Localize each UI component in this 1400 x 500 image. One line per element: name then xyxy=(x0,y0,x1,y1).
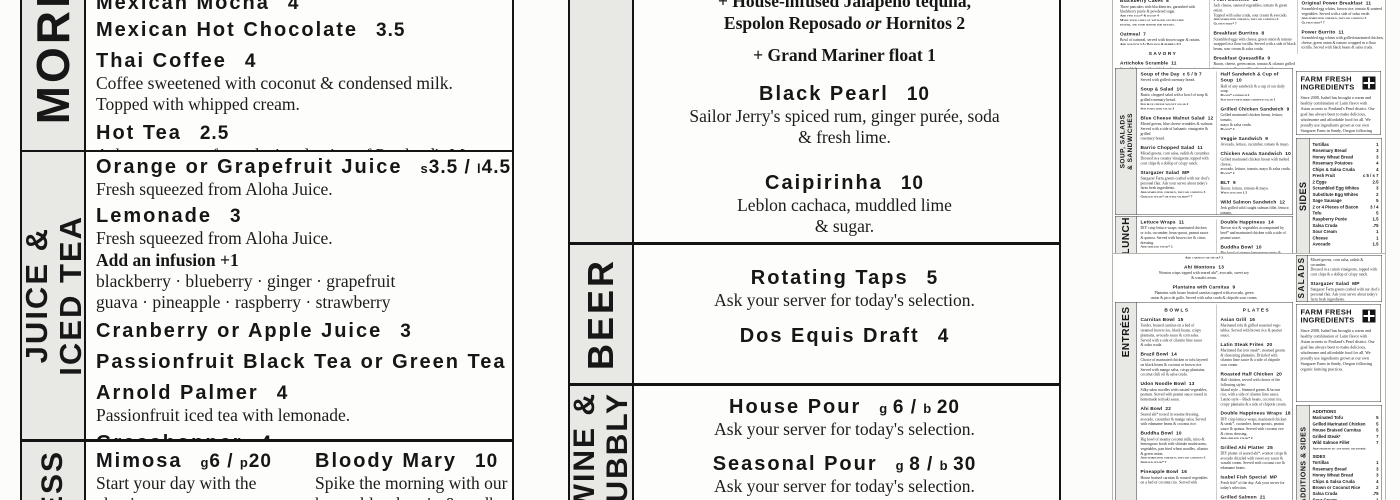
item-price: 10 xyxy=(907,84,930,105)
price-row: Wild Salmon Fillet7 xyxy=(1313,440,1379,446)
farm-fresh-paragraph: Since 2008, Isabel has brought a warm an… xyxy=(1301,328,1377,372)
item-name: Thai Coffee xyxy=(96,50,227,72)
panel-morning-drinks: MORNING Mexican Mocha4 Mexican Hot Choco… xyxy=(20,0,514,152)
menu-item: Bloody Mary10 xyxy=(315,450,510,473)
item-price: 10 xyxy=(475,451,498,472)
thumb-menu-item: Wild Salmon Sandwich12Jerk grilled wild … xyxy=(1221,200,1293,215)
menu-item: Orange or Grapefruit Juices3.5 / l4.5 xyxy=(96,156,506,179)
menu-scan: MORNING Mexican Mocha4 Mexican Hot Choco… xyxy=(0,0,1400,500)
sides-tab: SIDES xyxy=(1297,139,1311,255)
item-price: 4 xyxy=(277,383,289,404)
item-desc: Passionfruit iced tea with lemonade. xyxy=(96,405,506,426)
boozy-tab: BOTTOMLESS xyxy=(22,442,86,500)
item-price: 3.5 xyxy=(376,20,405,41)
thumb-menu-item: Oatmeal7Bowl of oatmeal, served with bro… xyxy=(1120,32,1206,48)
item-name: Arnold Palmer xyxy=(96,382,259,404)
item-name: House Pour xyxy=(729,396,861,418)
thumb-menu-item: Power Burrito11Scrambled egg whites with… xyxy=(1302,29,1386,50)
wine-tab: WINE & BUBBLY xyxy=(570,386,634,500)
thumb-menu-item: Chicken Asada Sandwich10Grilled marinate… xyxy=(1221,151,1293,176)
thumb-menu-item: Grilled Salmon21Grilled wild salmon*, ma… xyxy=(1221,494,1293,500)
thumb-lunch-box: LUNCH Lettuce Wraps11DIY crisp lettuce w… xyxy=(1115,216,1293,255)
farm-fresh-paragraph: Since 2008, Isabel has brought a warm an… xyxy=(1301,95,1377,135)
additions-note: Add protein to any bowl or entrée xyxy=(1313,447,1379,451)
menu-item: House Pourg 6 / b 20 xyxy=(632,396,1057,419)
thumb-menu-item: Carnitas Bowl15Tender, braised carnitas … xyxy=(1141,317,1214,347)
thumb-entrees-box: ENTRÉES BOWLSCarnitas Bowl15Tender, brai… xyxy=(1115,302,1293,500)
infusion-flavors: guava · pineapple · raspberry · strawber… xyxy=(96,292,506,313)
thumb-menu-item: Veggie Sandwich9Avocado, lettuce, cucumb… xyxy=(1221,136,1293,147)
menu-item: Black Pearl10 xyxy=(632,83,1057,106)
item-price: g 6 / b 20 xyxy=(879,397,960,418)
item-price: 10 xyxy=(901,173,924,194)
wine-tab-label-line1: WINE & xyxy=(570,392,600,500)
farm-fresh-box: FARM FRESH INGREDIENTS Since 2008, Isabe… xyxy=(1296,71,1381,135)
thumb-menu-item: Lettuce Wraps11DIY crisp lettuce wraps: … xyxy=(1141,220,1214,250)
thumb-breakfast-col3: tomato. Served with grilled marinated ch… xyxy=(1297,0,1386,54)
beer-tab: BEER xyxy=(570,245,634,383)
item-desc: Spike the morning with our xyxy=(315,473,510,494)
thumb-menu-item: Ahi Bowl22Seared ahi* tossed in sesame d… xyxy=(1141,406,1214,427)
soup-salads-colB: Half Sandwich & Cup of Soup10Half of any… xyxy=(1217,72,1293,216)
item-name: Seasonal Pour xyxy=(713,453,878,475)
item-name: Black Pearl xyxy=(759,83,889,105)
item-name: Bloody Mary xyxy=(315,450,457,472)
thumbnail-dinner-menu: Add carnitas or steak* 2Ahi Wontons13Won… xyxy=(1112,253,1386,500)
salads-items: Mixed greens, corn salsa, radish & cucum… xyxy=(1311,258,1380,303)
thumb-starters: Add carnitas or steak* 2Ahi Wontons13Won… xyxy=(1120,256,1288,304)
thumb-menu-item: Double Happiness14Brown rice & vegetable… xyxy=(1221,220,1293,241)
salads-tab: SALADS xyxy=(1297,256,1309,302)
wine-tab-label-line2: BUBBLY xyxy=(603,392,633,500)
thumb-menu-item: Brazil Bowl14Choice of marinated chicken… xyxy=(1141,351,1214,377)
item-name: Caipirinha xyxy=(765,172,883,194)
sides-price-list: Tortillas1Rosemary Bread3Honey Wheat Bre… xyxy=(1313,142,1379,248)
thumb-menu-item: Buddha Bowl10Big bowl of steamy coconut … xyxy=(1141,431,1214,466)
thumb-menu-item: Grilled Ahi Platter25DIY platter of sear… xyxy=(1221,445,1293,471)
entrees-plates-col: PLATESAsian Grill16Marinated tofu & gril… xyxy=(1217,305,1293,500)
farm-logo-icon xyxy=(1362,76,1377,91)
menu-item: Dos Equis Draft4 xyxy=(632,325,1057,348)
thumb-menu-item: Stargazer SaladMPStargazer Farm greens c… xyxy=(1141,170,1214,200)
menu-item: Rotating Taps5 xyxy=(632,267,1057,290)
item-desc: Coffee sweetened with coconut & condense… xyxy=(96,73,504,94)
soup-salads-tab-line1: SOUP, SALADS xyxy=(1119,115,1126,169)
item-price: 4 xyxy=(245,51,257,72)
lunch-tab-label: LUNCH xyxy=(1121,217,1131,255)
item-desc: Topped with whipped cream. xyxy=(96,94,504,115)
thumb-menu-item: Barrio Chopped Salad11Mixed greens, corn… xyxy=(1141,145,1214,166)
thumb-menu-item: Pineapple Bowl16House braised carnitas &… xyxy=(1141,469,1214,485)
menu-item: Thai Coffee4 xyxy=(96,50,504,73)
infusion-note: Add an infusion +1 xyxy=(96,249,506,271)
thumb-menu-item: BLT9Bacon, lettuce, tomato & mayo.With a… xyxy=(1221,180,1293,196)
thumb-menu-item: Add carnitas or steak* 2 xyxy=(1120,256,1288,260)
soup-salads-tab-line2: & SANDWICHES xyxy=(1127,113,1134,170)
lunch-colB: Double Happiness14Brown rice & vegetable… xyxy=(1217,220,1293,256)
item-price: 4 xyxy=(938,326,950,347)
entrees-tab-label: ENTRÉES xyxy=(1121,307,1131,358)
morning-tab: MORNING xyxy=(22,0,86,150)
thumb-menu-item: Isabel Fish SpecialMPFresh fish* of the … xyxy=(1221,474,1293,490)
thumb-menu-item: PLATES xyxy=(1221,308,1293,314)
thumb-menu-item: Plantains with Carnitas9Plantains with h… xyxy=(1120,284,1288,300)
infusion-flavors: blackberry · blueberry · ginger · grapef… xyxy=(96,271,506,292)
juice-tab-label-line2: ICED TEA xyxy=(55,215,86,376)
thumb-menu-item: BOWLS xyxy=(1141,308,1214,314)
cocktails-tab: O xyxy=(570,0,634,242)
thumb-menu-item: Breakfast Burritos8Scrambled eggs with c… xyxy=(1214,31,1297,52)
thumb-soup-salads-sandwiches-box: SOUP, SALADS & SANDWICHES Soup of the Da… xyxy=(1115,68,1293,215)
thumb-menu-item: Double Happiness Wraps18DIY crisp lettuc… xyxy=(1221,411,1293,441)
item-price: s3.5 / l4.5 xyxy=(421,157,512,178)
item-name: Hot Tea xyxy=(96,122,182,144)
panel-juice-iced-tea: JUICE & ICED TEA Orange or Grapefruit Ju… xyxy=(20,150,514,441)
salads-tab-label: SALADS xyxy=(1298,257,1306,299)
thumb-menu-item: Udon Noodle Bowl13Silky udon noodles wit… xyxy=(1141,381,1214,402)
thumb-menu-item: Latin Steak Frites20Marinated flat iron … xyxy=(1221,342,1293,368)
thumb-sides-box: SIDES Tortillas1Rosemary Bread3Honey Whe… xyxy=(1296,138,1382,255)
item-desc: Fresh squeezed from Aloha Juice. xyxy=(96,179,506,200)
menu-item: Mexican Hot Chocolate3.5 xyxy=(96,19,504,42)
juice-tab-label-line1: JUICE & xyxy=(22,227,52,363)
thumb-menu-item: Ahi Wontons13Wonton crisps topped with s… xyxy=(1120,264,1288,280)
item-desc: Start your day with the classic xyxy=(96,473,306,500)
item-desc: Fresh squeezed from Aloha Juice. xyxy=(96,228,506,249)
item-desc: Ask your server for today's selection. xyxy=(632,290,1057,311)
juice-tab: JUICE & ICED TEA xyxy=(22,152,86,439)
lunch-colA: Lettuce Wraps11DIY crisp lettuce wraps: … xyxy=(1141,220,1214,256)
menu-item: Mimosag6 / p20 xyxy=(96,450,306,473)
menu-item: Hot Tea2.5 xyxy=(96,122,504,145)
thumb-menu-item: Roasted Half Chicken20Half chicken, serv… xyxy=(1221,371,1293,406)
thumb-additions-sides-box: ADDITIONS & SIDES ADDITIONS Marinated To… xyxy=(1296,405,1382,500)
entrees-tab: ENTRÉES xyxy=(1116,303,1138,500)
thumb-menu-item: Original Power Breakfast11Scrambled egg … xyxy=(1302,0,1386,25)
additions-sides-tab: ADDITIONS & SIDES xyxy=(1297,406,1311,500)
menu-item: Arnold Palmer4 xyxy=(96,382,506,405)
item-price: g 8 / b 30 xyxy=(896,454,977,475)
item-name: Mexican Mocha xyxy=(96,0,270,14)
item-name: Mexican Hot Chocolate xyxy=(96,19,358,41)
farm-logo-icon xyxy=(1362,309,1377,324)
item-desc: house bloody mix & vodka xyxy=(315,494,510,500)
item-desc: Sailor Jerry's spiced rum, ginger purée,… xyxy=(632,106,1057,127)
thumb-salads-box: SALADS Mixed greens, corn salsa, radish … xyxy=(1296,255,1382,302)
thumb-menu-item: Soup & Salad10Rustic chopped salad with … xyxy=(1141,87,1214,112)
menu-item: Caipirinha10 xyxy=(632,172,1057,195)
panel-beer: BEER Rotating Taps5 Ask your server for … xyxy=(568,243,1061,385)
thumb-menu-item: Grilled Chicken Sandwich9Grilled marinat… xyxy=(1221,107,1293,132)
thumb-menu-item: Pearl Omelette11Jack cheese, sauteed veg… xyxy=(1214,0,1297,27)
beer-tab-label: BEER xyxy=(583,258,619,370)
item-name: Rotating Taps xyxy=(751,267,909,289)
panel-cocktails: O + House-infused Jalapeño tequila, Espo… xyxy=(568,0,1061,244)
soup-salads-tab: SOUP, SALADS & SANDWICHES xyxy=(1116,69,1138,215)
thumb-menu-item: Half Sandwich & Cup of Soup10Half of any… xyxy=(1221,72,1293,103)
lunch-tab: LUNCH xyxy=(1116,217,1138,255)
entrees-bowls-col: BOWLSCarnitas Bowl15Tender, braised carn… xyxy=(1141,305,1214,490)
additions-sides-tab-label: ADDITIONS & SIDES xyxy=(1300,427,1307,500)
thumb-menu-item: Stargazer SaladMPStargazer Farm greens c… xyxy=(1311,281,1380,302)
soup-salads-colA: Soup of the Dayc 5 / b 7Served with gril… xyxy=(1141,72,1214,204)
item-price: 3 xyxy=(400,321,412,342)
menu-item: Mexican Mocha4 xyxy=(96,0,504,15)
item-price: 3 xyxy=(230,206,242,227)
panel-bottomless-brunch: BOTTOMLESS Mimosag6 / p20 Start your day… xyxy=(20,440,514,500)
thumbnail-breakfast-lunch-menu: Three pancakes with banana & blackberrie… xyxy=(1112,0,1386,255)
item-price: g6 / p20 xyxy=(200,451,271,472)
boozy-tab-label: BOTTOMLESS xyxy=(38,450,68,500)
item-price: 5 xyxy=(927,268,939,289)
sides-price-list: Tortillas1Rosemary Bread3Honey Wheat Bre… xyxy=(1313,460,1379,500)
farm-fresh-box: FARM FRESH INGREDIENTS Since 2008, Isabe… xyxy=(1296,304,1381,402)
thumb-menu-item: Mixed greens, corn salsa, radish & cucum… xyxy=(1311,258,1380,277)
item-name: Passionfruit Black Tea or Green Tea xyxy=(96,351,507,373)
additions-price-list: Marinated Tofu5Grilled Marinated Chicken… xyxy=(1313,415,1379,446)
item-name: Cranberry or Apple Juice xyxy=(96,320,382,342)
item-desc: Leblon cachaca, muddled lime xyxy=(632,195,1057,216)
item-desc: Ask your server for today's selection. xyxy=(632,476,1057,497)
thumb-menu-item: Blackberry Cakes8Three pancakes with bla… xyxy=(1120,0,1206,28)
cocktail-addon: Espolon Reposado or Hornitos 2 xyxy=(632,12,1057,34)
item-name: Dos Equis Draft xyxy=(740,325,920,347)
thumb-menu-item: SAVORY xyxy=(1120,51,1206,57)
cocktail-addon: + Grand Mariner float 1 xyxy=(632,44,1057,66)
thumb-menu-item: Asian Grill16Marinated tofu & grilled se… xyxy=(1221,317,1293,338)
menu-item: Lemonade3 xyxy=(96,205,506,228)
item-desc: & sugar. xyxy=(632,216,1057,237)
menu-item: Passionfruit Black Tea or Green Tea2.5 xyxy=(96,351,506,374)
thumb-menu-item: Blue Cheese Walnut Salad12Mixed greens, … xyxy=(1141,115,1214,141)
item-price: 4 xyxy=(288,0,300,14)
thumb-menu-item: Soup of the Dayc 5 / b 7Served with gril… xyxy=(1141,72,1214,83)
panel-wine-bubbly: WINE & BUBBLY House Pourg 6 / b 20 Ask y… xyxy=(568,384,1061,500)
item-price: 2.5 xyxy=(200,123,229,144)
item-name: Orange or Grapefruit Juice xyxy=(96,156,403,178)
item-name: Mimosa xyxy=(96,450,182,472)
item-name: Lemonade xyxy=(96,205,212,227)
menu-item: Cranberry or Apple Juice3 xyxy=(96,320,506,343)
menu-item: Seasonal Pourg 8 / b 30 xyxy=(632,453,1057,476)
or-word: or xyxy=(866,13,882,33)
sides-tab-label: SIDES xyxy=(1299,182,1308,212)
item-desc: Ask your server for today's selection. xyxy=(632,419,1057,440)
cocktail-addon: + House-infused Jalapeño tequila, xyxy=(632,0,1057,12)
price-row: Avocado1.5 xyxy=(1313,241,1379,247)
morning-tab-label: MORNING xyxy=(30,0,76,124)
item-desc: & fresh lime. xyxy=(632,127,1057,148)
